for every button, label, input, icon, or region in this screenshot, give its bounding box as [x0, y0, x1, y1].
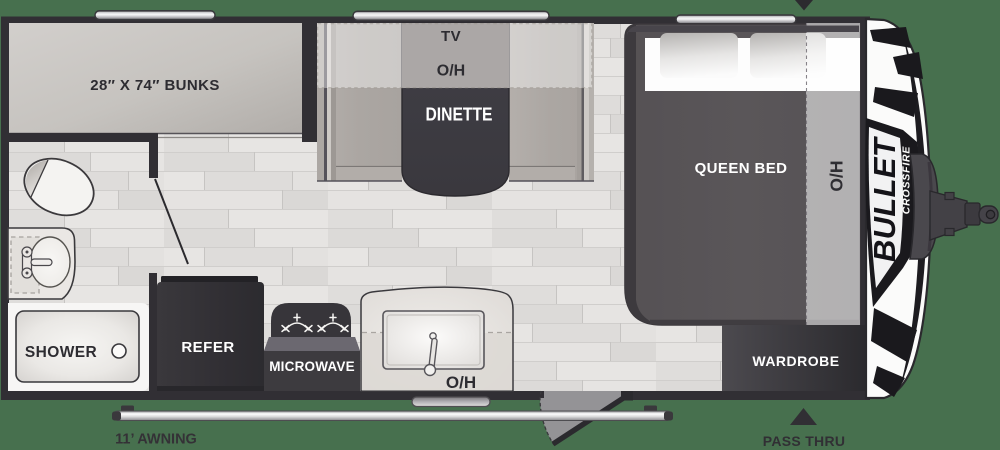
svg-text:SHOWER: SHOWER	[25, 344, 97, 361]
svg-text:TV: TV	[441, 28, 461, 45]
svg-text:BULLET: BULLET	[867, 135, 902, 262]
svg-text:PASS THRU: PASS THRU	[763, 433, 846, 449]
svg-text:O/H: O/H	[437, 63, 465, 80]
svg-text:WARDROBE: WARDROBE	[752, 353, 839, 369]
svg-text:MICROWAVE: MICROWAVE	[269, 359, 355, 374]
svg-text:DINETTE: DINETTE	[426, 105, 493, 125]
svg-text:QUEEN BED: QUEEN BED	[695, 160, 788, 177]
svg-text:O/H: O/H	[827, 160, 847, 191]
svg-text:O/H: O/H	[446, 373, 476, 392]
svg-text:11’ AWNING: 11’ AWNING	[115, 432, 197, 448]
svg-text:28″ X 74″ BUNKS: 28″ X 74″ BUNKS	[90, 77, 220, 94]
svg-text:REFER: REFER	[181, 339, 234, 356]
